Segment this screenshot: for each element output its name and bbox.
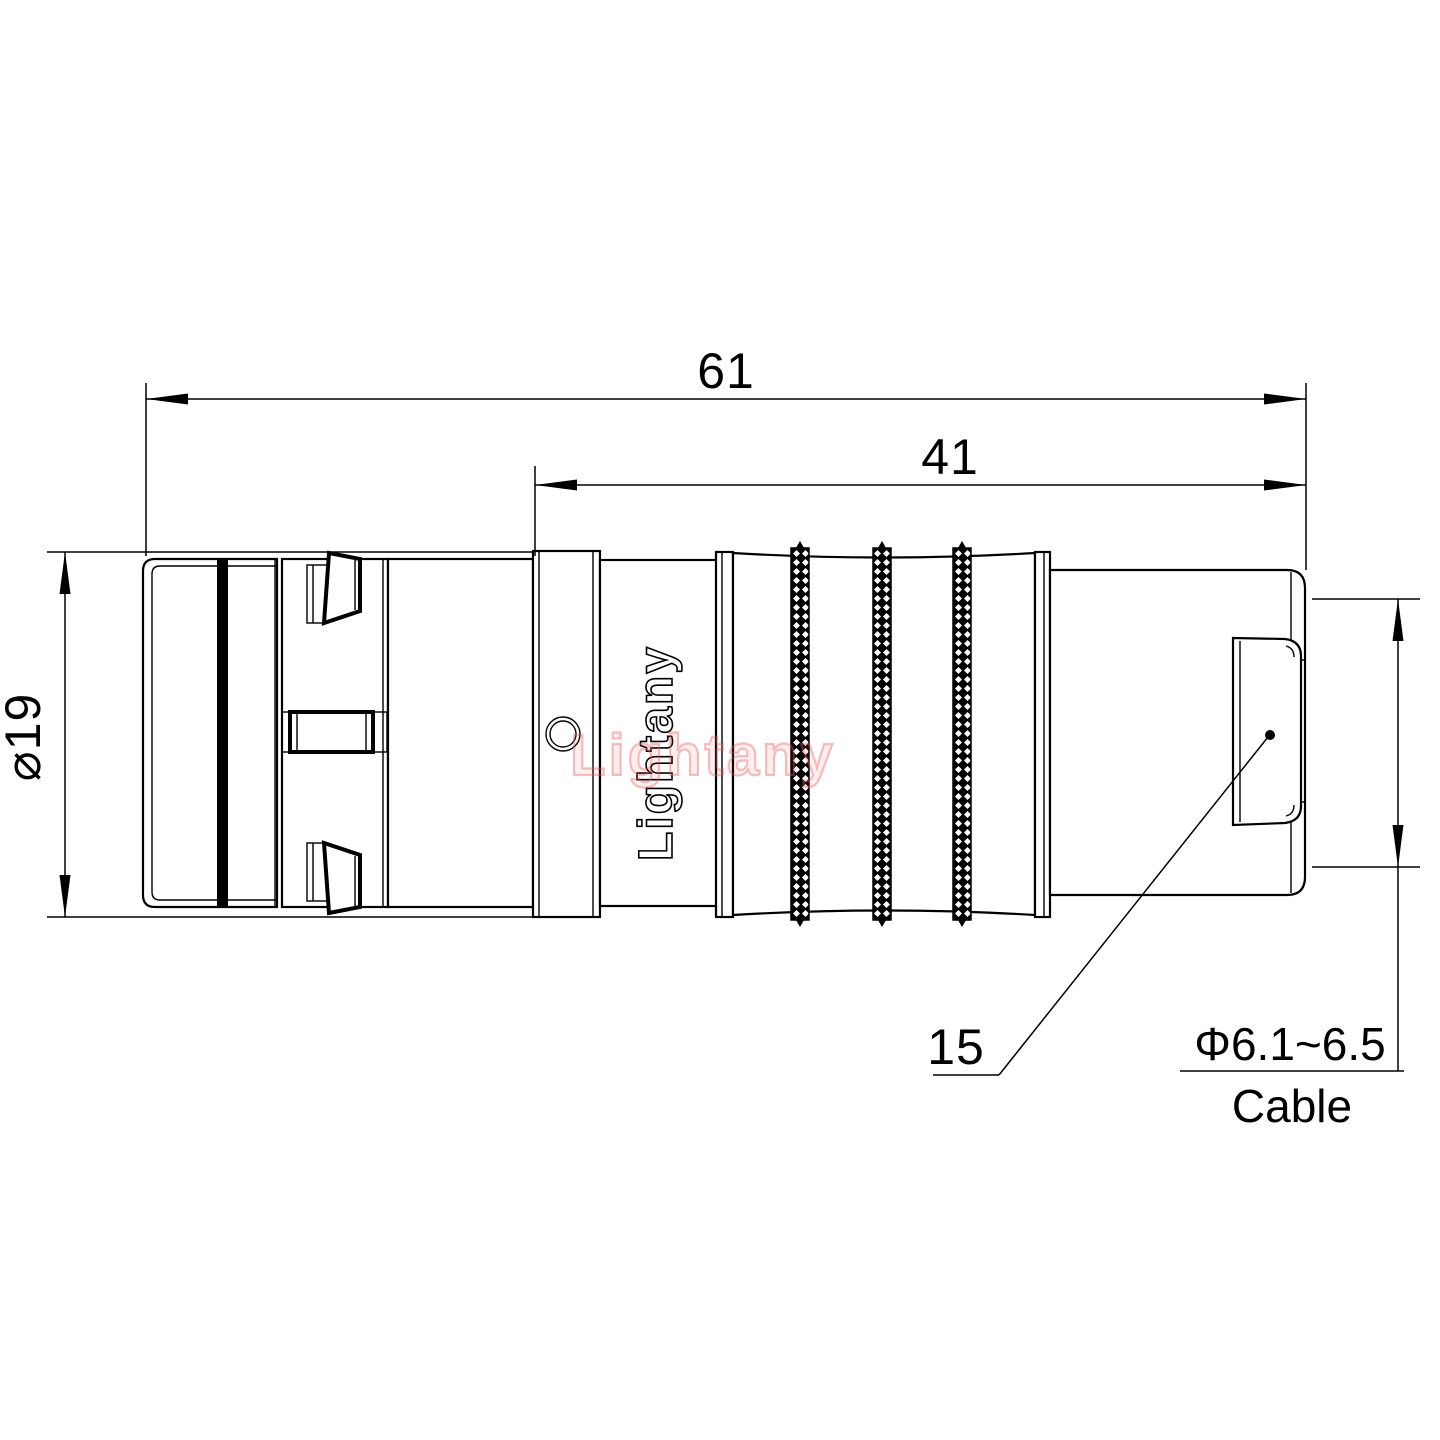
dim-text-d19: ⌀19 bbox=[0, 693, 51, 782]
front-cap-black-band bbox=[217, 559, 228, 907]
arrowhead-61-left bbox=[146, 394, 188, 405]
leader-target-dot bbox=[1265, 730, 1275, 740]
arrowhead-cable-top bbox=[1393, 599, 1404, 641]
dimension-overall-length: 61 bbox=[146, 343, 1306, 570]
latch-section bbox=[282, 553, 388, 913]
drawing-sheet: Lightany bbox=[0, 0, 1440, 1440]
knurl-band-3 bbox=[953, 541, 971, 927]
arrowhead-d19-bottom bbox=[60, 875, 71, 917]
arrowhead-d19-top bbox=[60, 552, 71, 594]
arrowhead-41-right bbox=[1264, 480, 1306, 491]
dimension-rear-length: 41 bbox=[535, 429, 1306, 556]
front-cap-outline bbox=[143, 559, 277, 907]
center-latch bbox=[282, 712, 387, 752]
cable-caption-text: Cable bbox=[1232, 1080, 1352, 1132]
knurl-band-2 bbox=[873, 541, 891, 927]
arrowhead-41-left bbox=[535, 480, 577, 491]
knurl-band-2-texture bbox=[873, 548, 891, 920]
connector-dimension-drawing: Lightany bbox=[0, 0, 1440, 1440]
dim-text-61: 61 bbox=[697, 343, 755, 399]
leader-15-text: 15 bbox=[927, 1019, 985, 1075]
watermark-text: Lightany bbox=[570, 723, 836, 788]
dim-text-41: 41 bbox=[921, 429, 979, 485]
arrowhead-cable-bottom bbox=[1393, 825, 1404, 867]
cable-diameter-text: Φ6.1~6.5 bbox=[1194, 1018, 1385, 1070]
arrowhead-61-right bbox=[1264, 394, 1306, 405]
center-latch-frame bbox=[290, 712, 373, 752]
mid-barrel bbox=[388, 559, 533, 907]
knurl-right-ring bbox=[1035, 552, 1050, 917]
front-cap bbox=[143, 559, 277, 907]
knurl-band-3-texture bbox=[953, 548, 971, 920]
